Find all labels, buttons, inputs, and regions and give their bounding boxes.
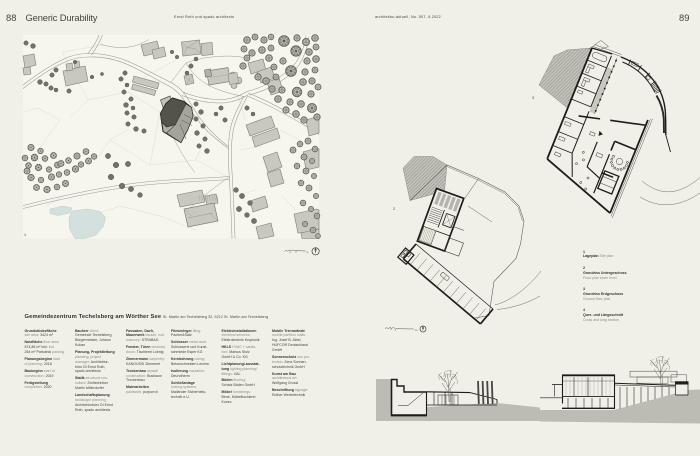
svg-text:3: 3	[532, 96, 534, 100]
svg-text:1: 1	[24, 233, 26, 237]
svg-text:2: 2	[393, 207, 395, 211]
